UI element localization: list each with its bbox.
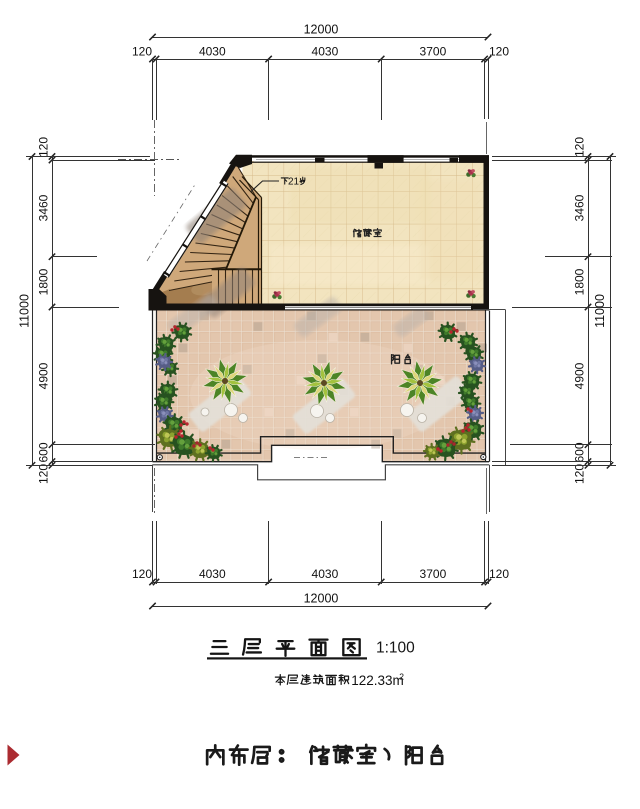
- svg-text:120: 120: [489, 45, 509, 59]
- svg-text:120: 120: [489, 567, 509, 581]
- svg-text:3460: 3460: [37, 194, 51, 221]
- svg-text:2: 2: [399, 672, 404, 682]
- svg-text:12000: 12000: [304, 592, 339, 606]
- svg-text:120: 120: [132, 45, 152, 59]
- svg-text:21: 21: [288, 177, 300, 188]
- svg-text:3700: 3700: [420, 567, 447, 581]
- svg-text:600: 600: [573, 442, 587, 462]
- svg-text:120: 120: [573, 137, 587, 157]
- svg-text:1800: 1800: [37, 268, 51, 295]
- svg-text:12000: 12000: [304, 23, 339, 37]
- svg-text:11000: 11000: [18, 294, 32, 328]
- svg-text:4900: 4900: [37, 362, 51, 389]
- svg-text:3460: 3460: [573, 194, 587, 221]
- svg-text:3700: 3700: [420, 45, 447, 59]
- svg-text:4030: 4030: [312, 567, 339, 581]
- svg-text:122.33m: 122.33m: [351, 673, 404, 688]
- svg-text:120: 120: [573, 464, 587, 484]
- svg-text:120: 120: [37, 464, 51, 484]
- svg-text:4030: 4030: [312, 45, 339, 59]
- svg-text:1800: 1800: [573, 268, 587, 295]
- svg-text:4030: 4030: [199, 45, 226, 59]
- svg-text:120: 120: [132, 567, 152, 581]
- svg-text:4030: 4030: [199, 567, 226, 581]
- svg-text:600: 600: [37, 442, 51, 462]
- svg-text:1:100: 1:100: [376, 640, 415, 657]
- svg-text:120: 120: [37, 137, 51, 157]
- svg-text:11000: 11000: [593, 294, 607, 328]
- svg-text:4900: 4900: [573, 362, 587, 389]
